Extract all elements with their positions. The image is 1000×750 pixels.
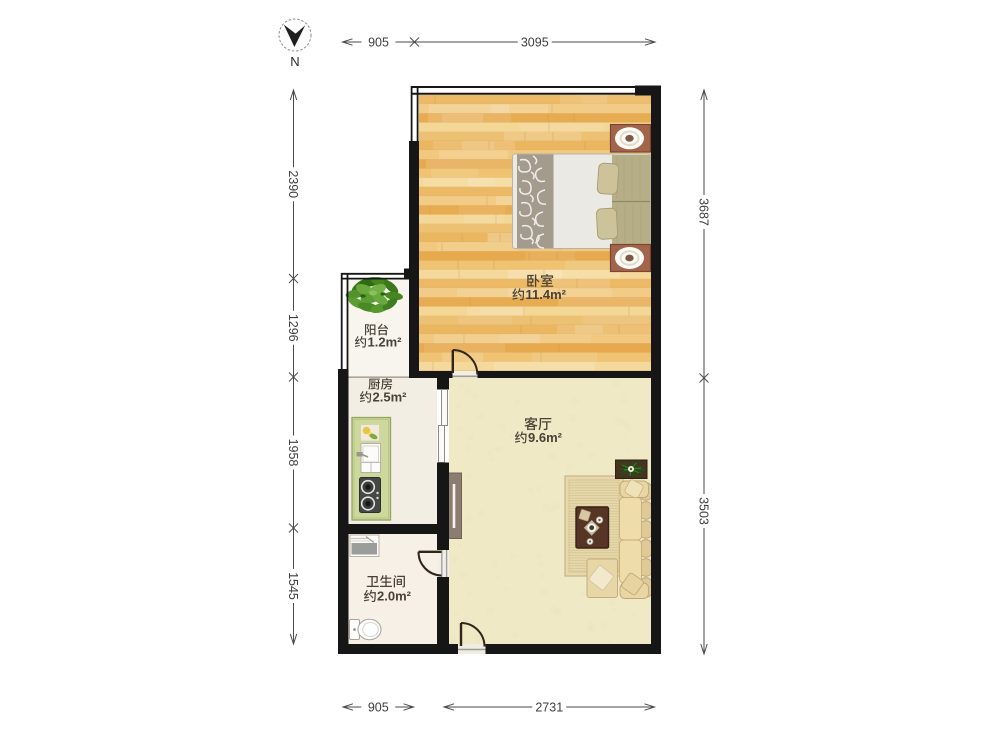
- svg-text:3503: 3503: [697, 497, 711, 525]
- svg-text:2390: 2390: [286, 170, 300, 198]
- svg-text:1545: 1545: [286, 572, 300, 600]
- svg-text:2731: 2731: [535, 701, 563, 715]
- svg-text:1296: 1296: [286, 314, 300, 342]
- svg-text:11.4m²: 11.4m²: [526, 287, 567, 302]
- svg-text:2.0m²: 2.0m²: [377, 589, 412, 604]
- svg-text:N: N: [290, 54, 299, 69]
- svg-text:3095: 3095: [521, 36, 549, 50]
- svg-text:905: 905: [368, 701, 389, 715]
- svg-text:1.2m²: 1.2m²: [368, 334, 403, 349]
- svg-text:905: 905: [368, 36, 389, 50]
- svg-text:3687: 3687: [697, 198, 711, 226]
- svg-text:9.6m²: 9.6m²: [528, 430, 563, 445]
- svg-text:1958: 1958: [286, 439, 300, 467]
- svg-text:2.5m²: 2.5m²: [373, 389, 408, 404]
